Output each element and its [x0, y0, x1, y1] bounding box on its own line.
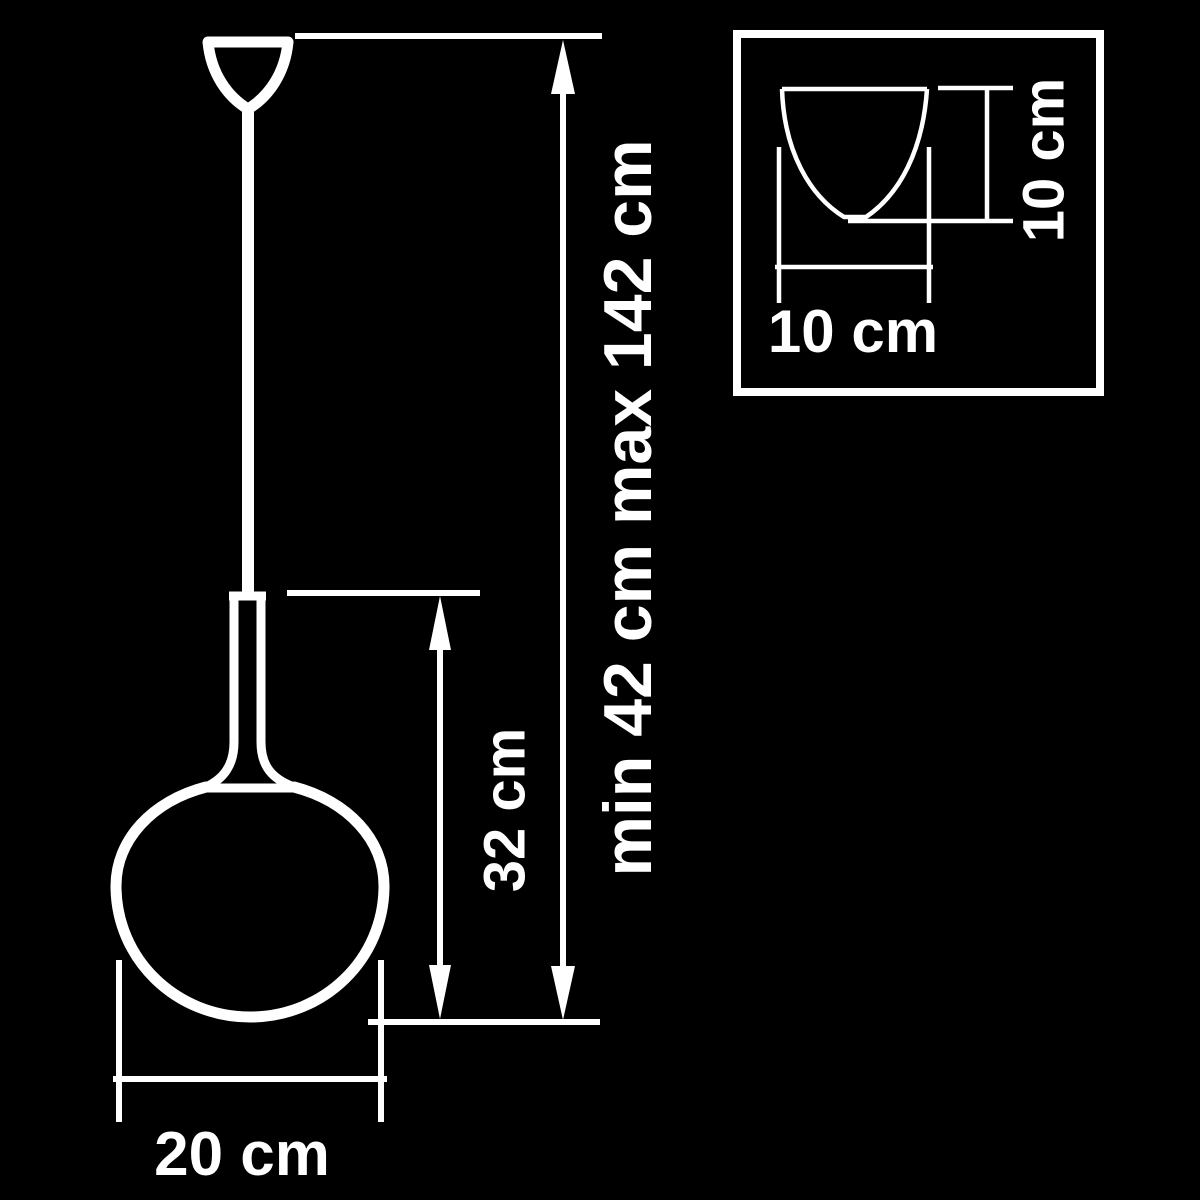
arrow-up-icon [551, 40, 575, 94]
neck-left-wall [206, 596, 234, 787]
canopy-width-label: 10 cm [768, 298, 938, 365]
canopy-detail-inset: 10 cm 10 cm [737, 34, 1100, 392]
neck-right-wall [261, 596, 294, 787]
arrow-down-icon [429, 965, 451, 1019]
arrow-down-icon [551, 966, 575, 1020]
shade-diameter-label: 20 cm [154, 1120, 330, 1189]
glass-sphere [116, 787, 384, 1017]
pendant-lamp-drawing [116, 42, 384, 1017]
inset-canopy-profile [782, 89, 927, 217]
canopy-shape [208, 42, 288, 109]
pendant-lamp-dimension-diagram: min 42 cm max 142 cm 32 cm 20 cm [0, 0, 1200, 1200]
total-height-label: min 42 cm max 142 cm [590, 139, 666, 876]
canopy-height-label: 10 cm [1012, 78, 1077, 242]
arrow-up-icon [429, 596, 451, 650]
dimension-shade-diameter: 20 cm [113, 960, 387, 1189]
diagram-canvas: min 42 cm max 142 cm 32 cm 20 cm [0, 0, 1200, 1200]
fixture-height-label: 32 cm [473, 728, 538, 892]
